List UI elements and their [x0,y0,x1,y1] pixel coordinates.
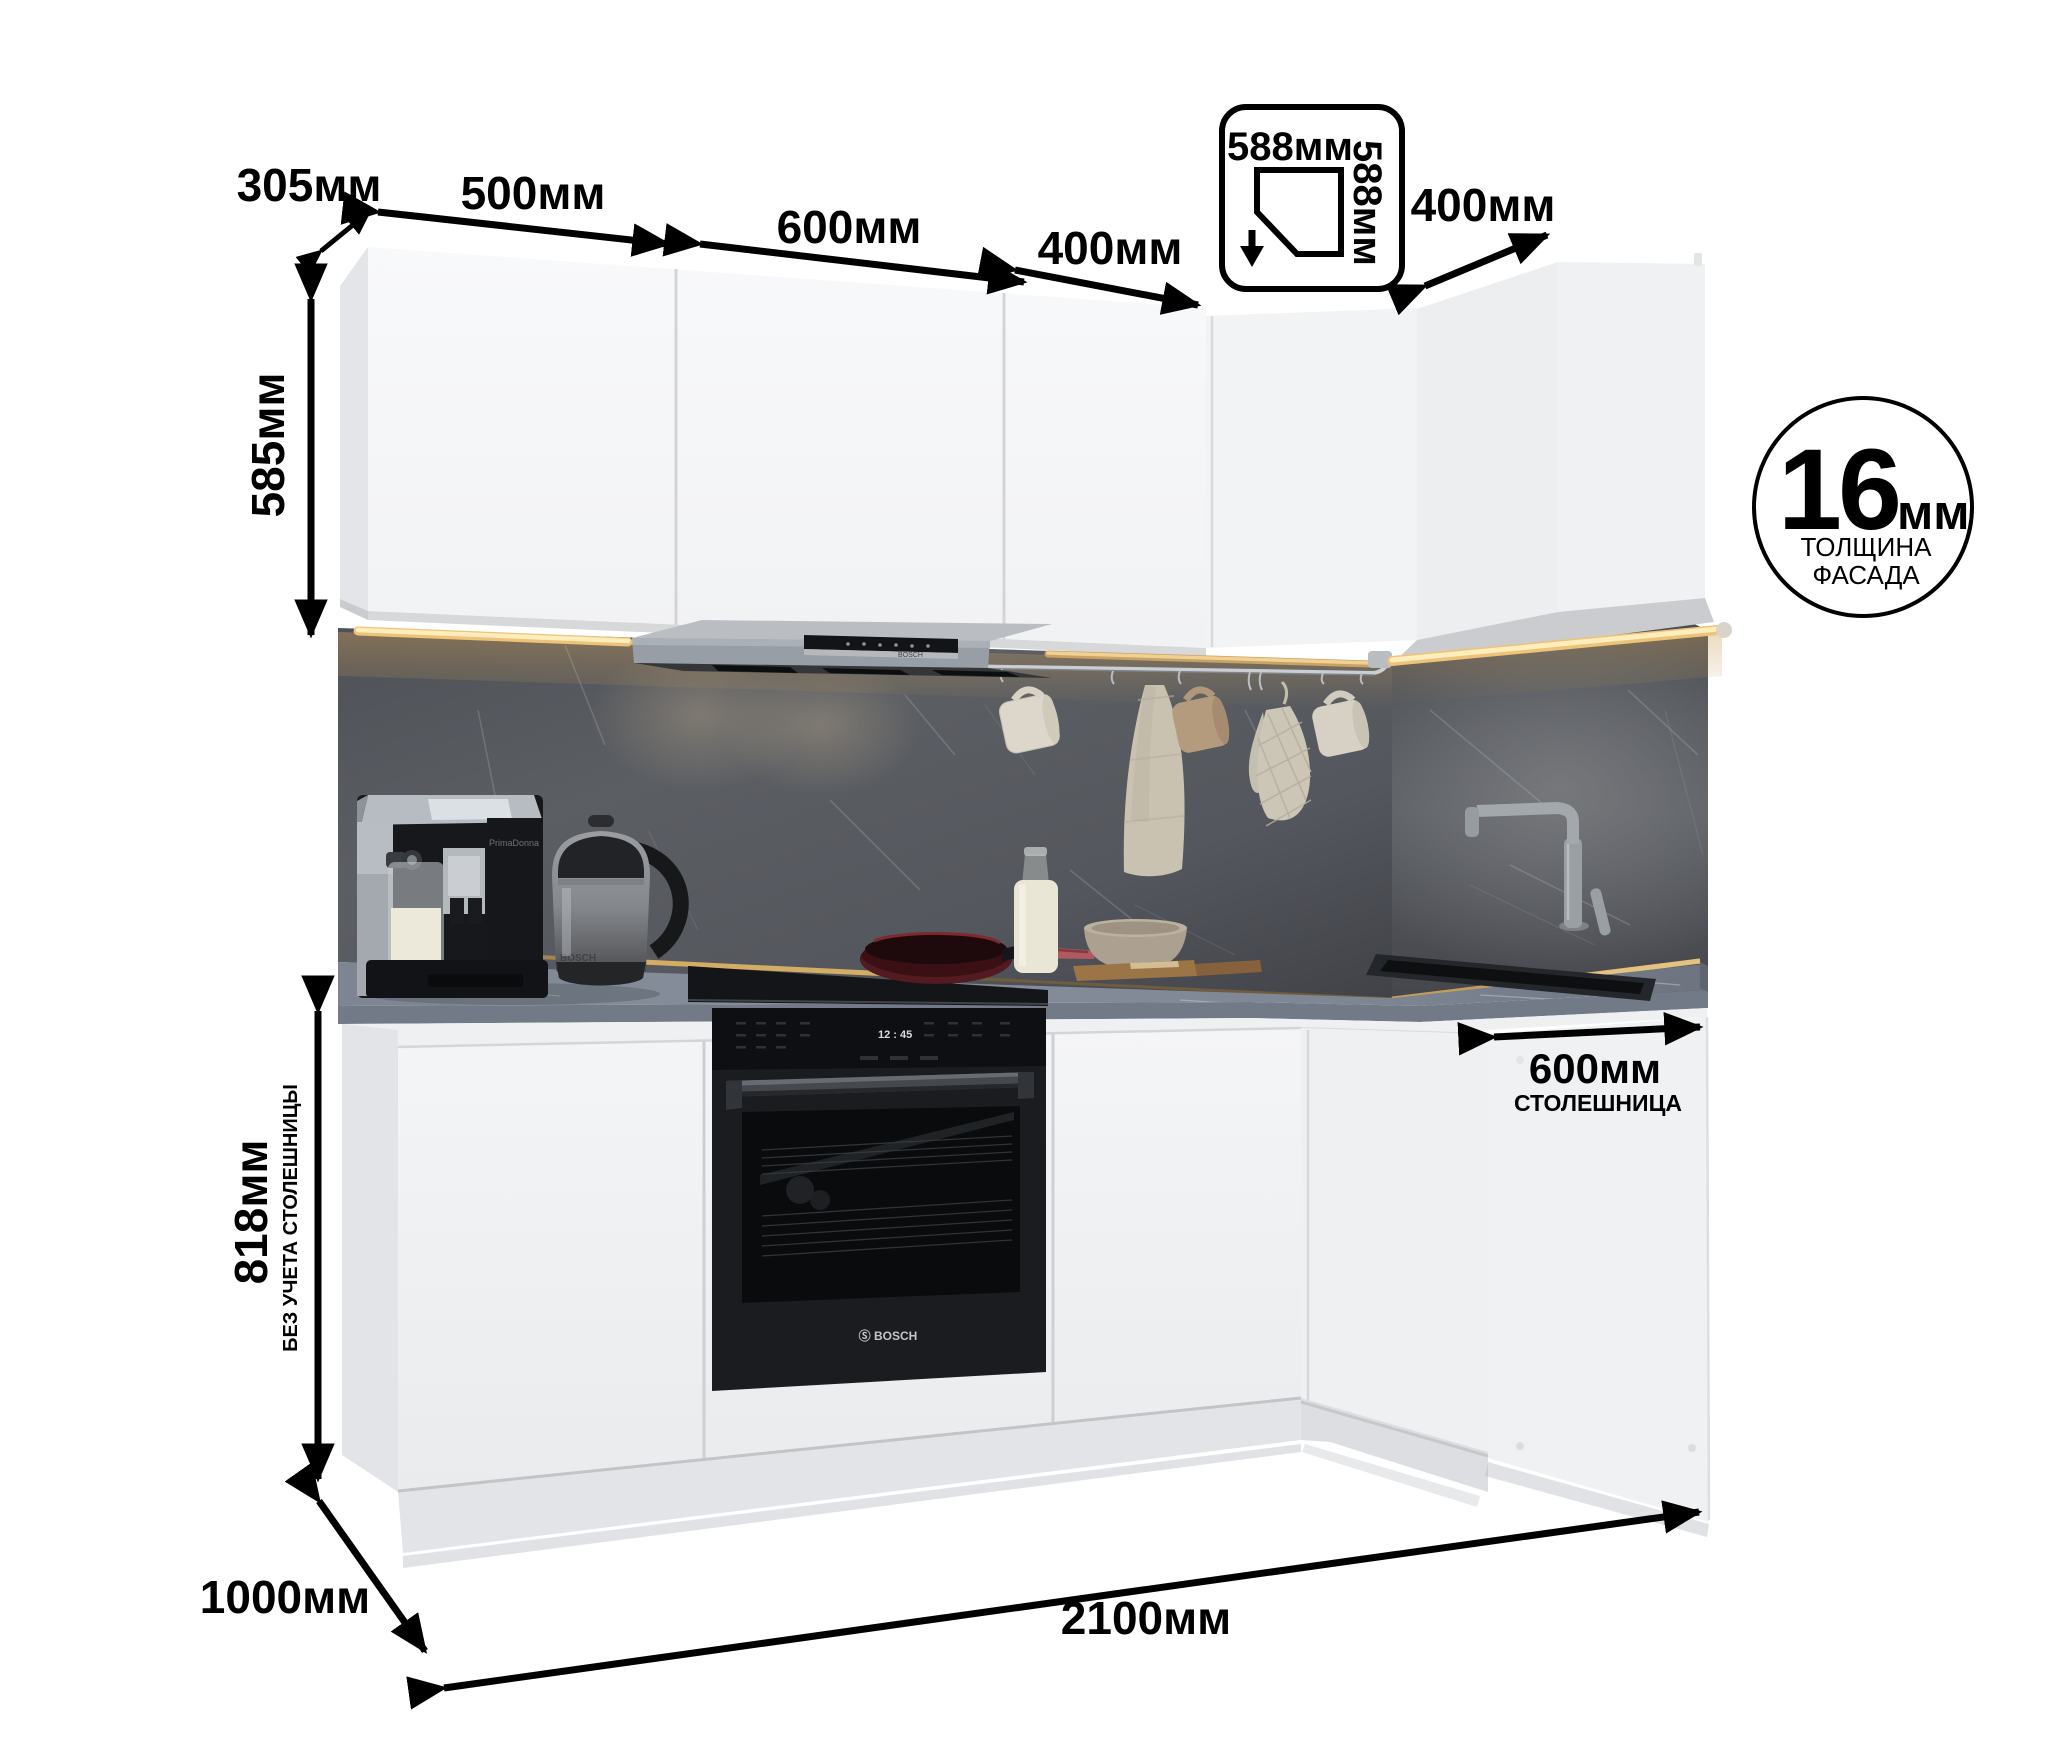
svg-text:СТОЛЕШНИЦА: СТОЛЕШНИЦА [1514,1090,1682,1116]
svg-text:400мм: 400мм [1411,179,1556,231]
svg-text:588мм: 588мм [1345,140,1389,266]
svg-text:400мм: 400мм [1038,222,1183,274]
svg-text:PrimaDonna: PrimaDonna [489,838,539,848]
svg-text:818мм: 818мм [225,1140,277,1285]
svg-text:Ⓢ BOSCH: Ⓢ BOSCH [859,1328,918,1343]
svg-text:BOSCH: BOSCH [898,652,923,659]
svg-text:588мм: 588мм [1227,125,1353,169]
svg-text:305мм: 305мм [237,159,382,211]
svg-text:585мм: 585мм [242,373,294,518]
svg-text:500мм: 500мм [461,167,606,219]
svg-text:600мм: 600мм [1529,1045,1661,1092]
svg-text:ТОЛЩИНА: ТОЛЩИНА [1801,532,1933,562]
svg-text:1000мм: 1000мм [200,1571,370,1623]
svg-text:600мм: 600мм [777,201,922,253]
svg-text:БЕЗ УЧЕТА СТОЛЕШНИЦЫ: БЕЗ УЧЕТА СТОЛЕШНИЦЫ [280,1084,302,1352]
svg-text:ФАСАДА: ФАСАДА [1812,560,1920,590]
svg-text:12 : 45: 12 : 45 [878,1029,912,1041]
